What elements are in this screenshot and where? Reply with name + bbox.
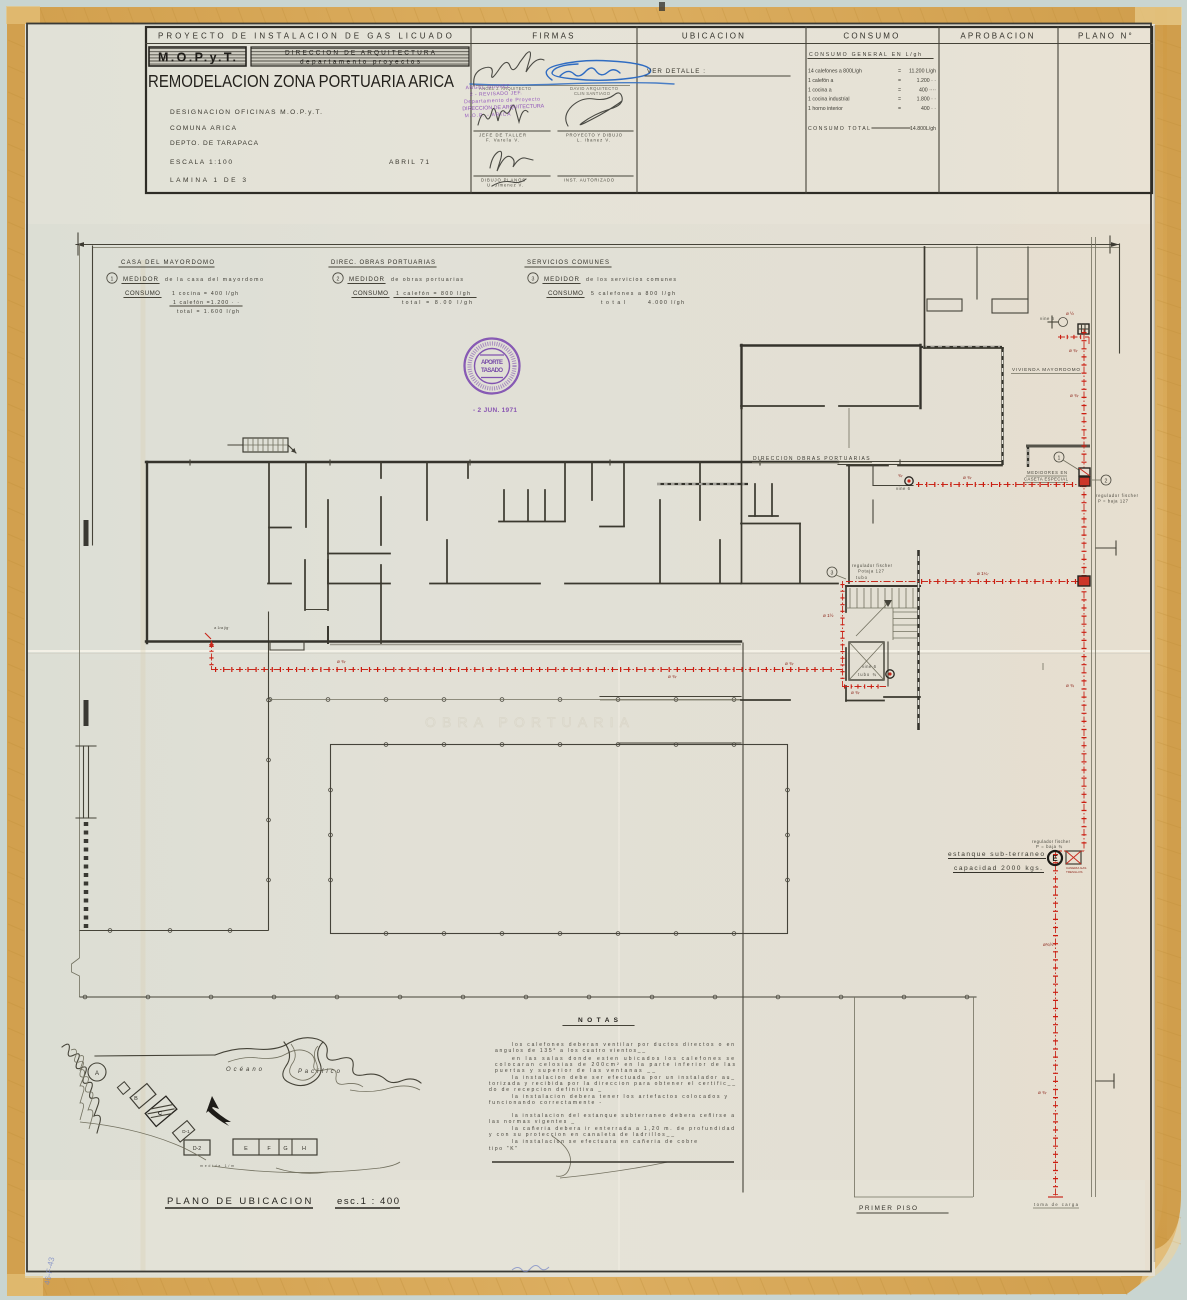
svg-text:2: 2 <box>337 277 340 283</box>
svg-text:FIRMAS: FIRMAS <box>532 32 575 41</box>
svg-text:4.000 l/gh: 4.000 l/gh <box>648 300 684 306</box>
svg-text:regulador fischer: regulador fischer <box>1096 493 1139 498</box>
svg-text:total = 1.600 l/gh: total = 1.600 l/gh <box>177 309 239 315</box>
svg-text:SERVICIOS COMUNES: SERVICIOS COMUNES <box>527 260 609 266</box>
svg-text:=: = <box>898 97 901 103</box>
svg-text:VIVIENDA MAYORDOMO: VIVIENDA MAYORDOMO <box>1012 367 1080 372</box>
svg-text:Potaja 127: Potaja 127 <box>858 569 885 574</box>
svg-text:ESCALA 1:100: ESCALA 1:100 <box>170 159 232 166</box>
svg-text:funcionando correctamente -: funcionando correctamente - <box>489 1100 601 1106</box>
svg-text:vine 6: vine 6 <box>862 664 877 669</box>
svg-text:CASETA ESPECIAL: CASETA ESPECIAL <box>1024 477 1069 482</box>
svg-text:CASA DEL MAYORDOMO: CASA DEL MAYORDOMO <box>121 260 214 266</box>
svg-text:la instalacion se efectuara: la instalacion se efectuara en cañeria d… <box>512 1139 697 1145</box>
svg-text:CONSUMO: CONSUMO <box>125 290 160 297</box>
svg-text:U. Jimenez V.: U. Jimenez V. <box>487 183 523 188</box>
svg-text:TASADO: TASADO <box>481 368 503 374</box>
svg-text:MEDIDOR: MEDIDOR <box>349 276 385 283</box>
svg-text:MEDIDOR: MEDIDOR <box>544 276 580 283</box>
svg-text:PRIMER PISO: PRIMER PISO <box>859 1205 917 1212</box>
svg-text:ø ¾·: ø ¾· <box>1038 1090 1047 1095</box>
svg-text:OBRA PORTUARIA: OBRA PORTUARIA <box>425 714 635 730</box>
svg-text:ø ¾: ø ¾ <box>1066 683 1074 688</box>
svg-text:regulador fischer: regulador fischer <box>852 563 893 568</box>
svg-text:ø 1¼·: ø 1¼· <box>977 571 989 576</box>
svg-text:=: = <box>898 78 901 84</box>
svg-text:A: A <box>95 1071 99 1077</box>
svg-text:D-1: D-1 <box>182 1129 190 1134</box>
svg-text:=: = <box>898 106 901 112</box>
svg-text:C: C <box>158 1111 162 1117</box>
svg-text:UBICACION: UBICACION <box>682 32 746 41</box>
svg-text:ø¾½··: ø¾½·· <box>1043 941 1057 947</box>
svg-text:3: 3 <box>532 277 535 283</box>
svg-text:ø ¾·: ø ¾· <box>1069 348 1078 353</box>
svg-text:ø ¾·: ø ¾· <box>1070 393 1079 398</box>
svg-text:H: H <box>302 1146 306 1152</box>
svg-text:INST. AUTORIZADO: INST. AUTORIZADO <box>564 178 615 183</box>
svg-text:1 cocina = 400 l/gh: 1 cocina = 400 l/gh <box>172 291 238 297</box>
svg-text:estanque sub-terraneo: estanque sub-terraneo <box>948 851 1044 858</box>
svg-text:VER DETALLE :: VER DETALLE : <box>647 68 705 75</box>
svg-text:L. Ibanez V.: L. Ibanez V. <box>577 138 610 143</box>
svg-text:las normas vigentes _: las normas vigentes _ <box>489 1119 574 1125</box>
svg-text:ABRIL 71: ABRIL 71 <box>389 159 429 166</box>
svg-text:1 calefón a: 1 calefón a <box>808 78 833 84</box>
svg-text:DIRECCION OBRAS PORTUARIAS: DIRECCION OBRAS PORTUARIAS <box>753 456 871 462</box>
svg-text:ø ¾·: ø ¾· <box>337 659 346 664</box>
svg-text:MEDIDORES EN: MEDIDORES EN <box>1027 470 1067 475</box>
svg-text:CONSUMO: CONSUMO <box>353 290 388 297</box>
svg-text:DIREC. OBRAS PORTUARIAS: DIREC. OBRAS PORTUARIAS <box>331 260 435 266</box>
svg-text:tubo: tubo <box>856 575 868 580</box>
svg-text:CONSUMO: CONSUMO <box>548 290 583 297</box>
svg-text:D-2: D-2 <box>193 1146 201 1152</box>
svg-text:angulos de 135° a los cuatro v: angulos de 135° a los cuatro vientos__ <box>495 1048 645 1054</box>
svg-text:P = baja ¾: P = baja ¾ <box>1036 844 1063 849</box>
svg-text:1: 1 <box>1058 456 1061 462</box>
svg-text:PLANO N°: PLANO N° <box>1078 32 1134 41</box>
svg-text:1 cocina industrial: 1 cocina industrial <box>808 97 850 103</box>
svg-text:ø ¾·: ø ¾· <box>963 475 972 480</box>
svg-text:1.800 · ·: 1.800 · · <box>917 97 937 103</box>
svg-text:P = baja 127: P = baja 127 <box>1098 499 1129 504</box>
svg-text:400 · ·: 400 · · <box>921 106 936 112</box>
svg-text:t o t a l: t o t a l <box>601 300 625 306</box>
svg-text:1 cocina a: 1 cocina a <box>808 87 832 93</box>
svg-text:P a c í f i c o: P a c í f i c o <box>298 1069 341 1075</box>
svg-text:MEDIDOR: MEDIDOR <box>123 276 159 283</box>
svg-text:1: 1 <box>111 277 114 283</box>
svg-text:E: E <box>244 1146 248 1152</box>
svg-text:PLANO DE UBICACION: PLANO DE UBICACION <box>167 1196 313 1207</box>
svg-text:14.800L/gh: 14.800L/gh <box>910 126 936 132</box>
svg-text:APORTE: APORTE <box>481 360 503 366</box>
svg-text:1 horno interior: 1 horno interior <box>808 106 843 112</box>
svg-text:- 2 JUN. 1971: - 2 JUN. 1971 <box>473 407 517 414</box>
svg-text:CLIN SANTIAGO: CLIN SANTIAGO <box>574 91 611 96</box>
svg-text:APROBACION: APROBACION <box>960 32 1035 41</box>
svg-text:3: 3 <box>831 571 834 577</box>
svg-text:1 calefón = 800 l/gh: 1 calefón = 800 l/gh <box>396 291 470 297</box>
svg-text:esc.1 : 400: esc.1 : 400 <box>337 1196 399 1207</box>
svg-text:ø ½: ø ½ <box>1066 310 1074 316</box>
svg-text:de los servicios comunes: de los servicios comunes <box>586 277 676 283</box>
svg-text:toma de carga: toma de carga <box>1034 1202 1079 1207</box>
svg-text:400 ····: 400 ···· <box>919 87 936 93</box>
svg-text:ø 1½: ø 1½ <box>823 612 834 618</box>
svg-text:F. Varela V.: F. Varela V. <box>486 138 519 143</box>
svg-text:COMUNA ARICA: COMUNA ARICA <box>170 125 237 132</box>
svg-text:2: 2 <box>1105 479 1108 485</box>
svg-text:de obras portuarias: de obras portuarias <box>391 277 463 283</box>
svg-text:1 calefón =1.200 · ·: 1 calefón =1.200 · · <box>173 300 239 306</box>
svg-text:¾·: ¾· <box>898 473 903 478</box>
svg-text:CONSUMO: CONSUMO <box>843 32 900 41</box>
svg-text:ø ¾·: ø ¾· <box>851 690 860 695</box>
svg-text:DESIGNACION OFICINAS M.O.P.: DESIGNACION OFICINAS M.O.P.y.T. <box>170 109 322 116</box>
svg-text:REMODELACION ZONA PORTUARIA AR: REMODELACION ZONA PORTUARIA ARICA <box>148 71 454 91</box>
svg-text:vine 6: vine 6 <box>896 486 911 491</box>
svg-text:5 calefones a 800 l/gh: 5 calefones a 800 l/gh <box>591 291 675 297</box>
svg-text:PROYECTO DE INSTALACION DE: PROYECTO DE INSTALACION DE GAS LICUADO <box>158 32 454 41</box>
svg-text:=: = <box>898 87 901 93</box>
svg-text:O c é a n o: O c é a n o <box>226 1067 263 1073</box>
svg-text:14 calefones a 800L/gh: 14 calefones a 800L/gh <box>808 69 862 75</box>
svg-text:vine 6: vine 6 <box>1040 316 1055 321</box>
svg-text:G: G <box>283 1146 287 1152</box>
svg-text:a 1ra jig·: a 1ra jig· <box>214 625 230 630</box>
svg-text:=: = <box>898 69 901 75</box>
svg-text:1.200 · ·: 1.200 · · <box>917 78 937 84</box>
svg-text:tubo ¾: tubo ¾ <box>858 672 877 677</box>
svg-text:ø ¾·: ø ¾· <box>785 661 794 666</box>
svg-text:B: B <box>134 1096 138 1102</box>
svg-text:11.200 L/gh: 11.200 L/gh <box>909 69 936 75</box>
svg-text:ø ¾·: ø ¾· <box>668 674 677 679</box>
svg-text:la instalacion del estanque s: la instalacion del estanque subterraneo … <box>512 1113 734 1119</box>
svg-text:DEPTO. DE TARAPACA: DEPTO. DE TARAPACA <box>170 140 259 147</box>
svg-text:E: E <box>1052 854 1058 863</box>
svg-text:TRESILLOS: TRESILLOS <box>1066 870 1083 874</box>
